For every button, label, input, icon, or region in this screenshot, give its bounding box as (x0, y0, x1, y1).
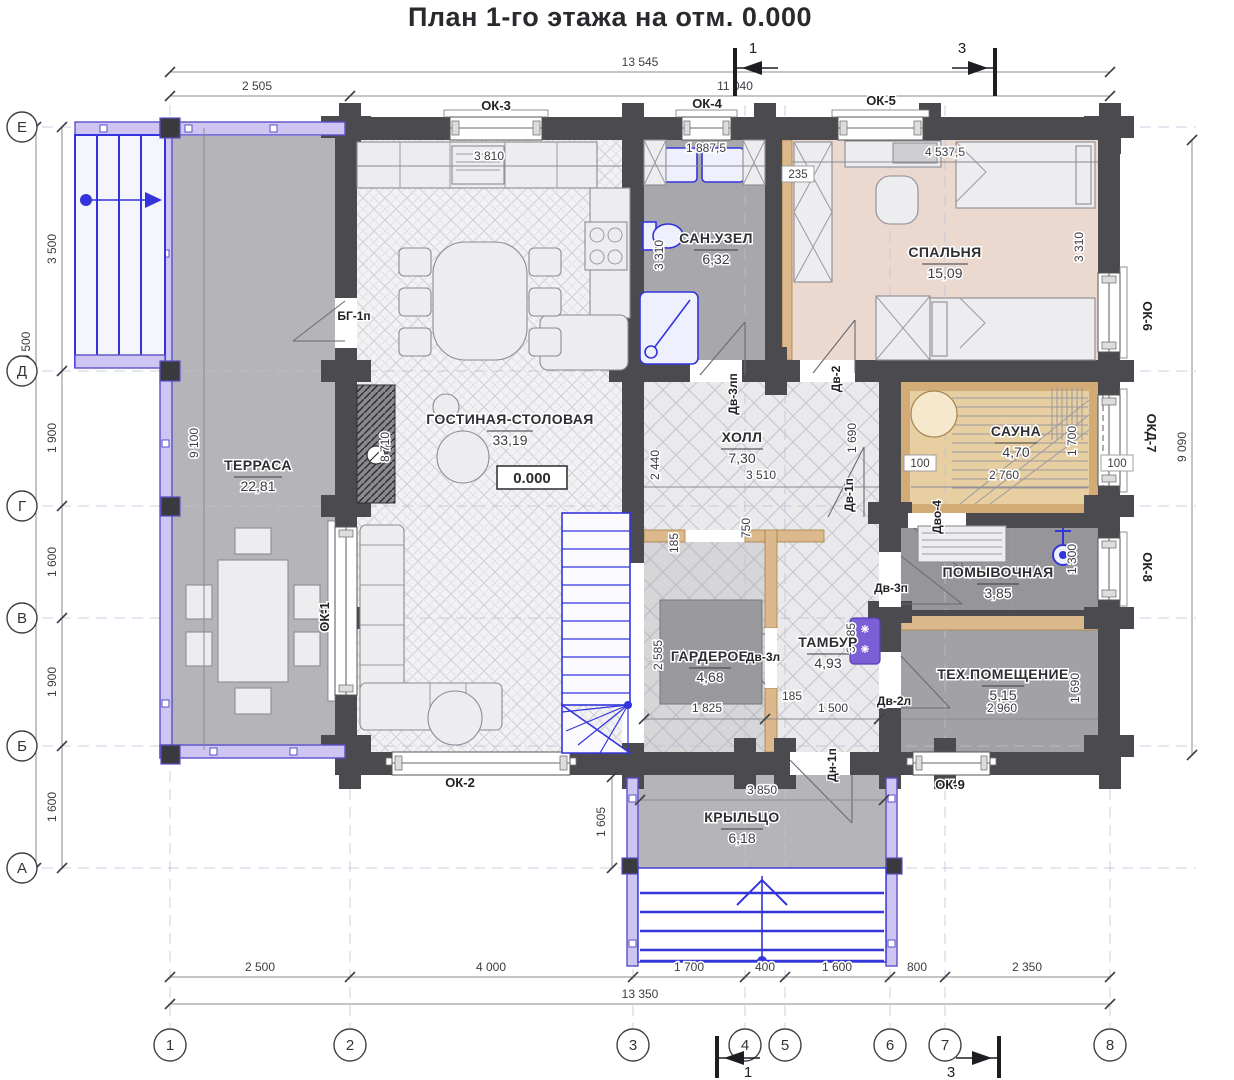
svg-text:2: 2 (346, 1037, 354, 1054)
bed (956, 142, 1095, 208)
svg-text:4: 4 (741, 1037, 749, 1054)
svg-text:1 825: 1 825 (692, 701, 722, 715)
svg-text:1 500: 1 500 (818, 701, 848, 715)
room-label-tehpom: ТЕХ.ПОМЕЩЕНИЕ (937, 666, 1068, 682)
door-label-dv3l: Дв-3л (746, 650, 780, 664)
svg-text:5: 5 (781, 1037, 789, 1054)
svg-text:1 600: 1 600 (822, 960, 852, 974)
svg-text:2 585: 2 585 (651, 640, 665, 670)
floor-plan-page: 13 545 11 040 2 505 2 500 4 000 1 700 40… (0, 0, 1234, 1080)
window-label-ok5: ОК-5 (866, 93, 896, 108)
stove (585, 222, 627, 270)
room-label-garderob: ГАРДЕРОБ (671, 648, 749, 664)
svg-text:3 850: 3 850 (747, 783, 777, 797)
window-label-ok4: ОК-4 (692, 96, 722, 111)
svg-text:3: 3 (629, 1037, 637, 1054)
svg-text:1: 1 (749, 40, 757, 57)
office-chair (876, 176, 918, 224)
svg-text:6,32: 6,32 (702, 251, 729, 267)
svg-text:7,30: 7,30 (728, 450, 755, 466)
svg-text:2 440: 2 440 (648, 450, 662, 480)
svg-text:Б: Б (17, 738, 27, 755)
window-ok4 (676, 110, 737, 140)
floor-plan-drawing: 13 545 11 040 2 505 2 500 4 000 1 700 40… (0, 0, 1234, 1080)
svg-text:750: 750 (739, 518, 753, 538)
svg-text:800: 800 (907, 960, 927, 974)
svg-text:1 600: 1 600 (45, 792, 59, 822)
svg-text:1 900: 1 900 (45, 667, 59, 697)
door-label-bg1p: БГ-1п (337, 309, 370, 323)
svg-text:100: 100 (1107, 458, 1126, 470)
window-label-ok9: ОК-9 (935, 777, 965, 792)
window-label-ok2: ОК-2 (445, 775, 475, 790)
coffee-table (437, 431, 489, 483)
door-label-dv2l: Дв-2л (877, 694, 911, 708)
room-label-sauna: САУНА (991, 423, 1041, 439)
wardrobe (794, 142, 832, 282)
svg-text:400: 400 (755, 960, 775, 974)
svg-text:185: 185 (782, 689, 802, 703)
room-label-spalnya: СПАЛЬНЯ (908, 244, 981, 260)
svg-text:4 000: 4 000 (476, 960, 506, 974)
svg-text:3,85: 3,85 (984, 585, 1011, 601)
svg-text:2 350: 2 350 (1012, 960, 1042, 974)
svg-text:1: 1 (166, 1037, 174, 1054)
window-ok3 (444, 110, 548, 140)
svg-text:2 760: 2 760 (989, 468, 1019, 482)
svg-text:3 310: 3 310 (1072, 232, 1086, 262)
room-label-holl: ХОЛЛ (722, 429, 763, 445)
window-ok8 (1098, 532, 1127, 606)
dim-right-total: 9 090 (1175, 432, 1189, 462)
svg-text:6,18: 6,18 (728, 830, 755, 846)
elevation-mark: 0.000 (497, 466, 567, 489)
terrace-table (218, 560, 288, 682)
svg-text:2 500: 2 500 (245, 960, 275, 974)
door-label-dv1l: Дв-1п (842, 478, 856, 512)
svg-text:15,09: 15,09 (927, 265, 962, 281)
svg-text:1 300: 1 300 (1065, 544, 1079, 574)
section-mark-3-top: 3 (952, 40, 995, 96)
door-label-dv3p: Дв-3п (874, 581, 908, 595)
door-label-dvo4: Дво-4 (930, 500, 944, 534)
door-label-dv2: Дв-2 (829, 365, 843, 392)
svg-text:8: 8 (1106, 1037, 1114, 1054)
svg-text:3: 3 (958, 40, 966, 57)
svg-text:Г: Г (18, 498, 26, 515)
dim-top-total: 13 545 (622, 55, 659, 69)
svg-text:1 887,5: 1 887,5 (686, 141, 726, 155)
svg-text:Е: Е (17, 119, 27, 136)
window-label-okd7: ОКД-7 (1144, 414, 1159, 453)
svg-text:2 960: 2 960 (987, 701, 1017, 715)
svg-text:9 100: 9 100 (187, 428, 201, 458)
page-title: План 1-го этажа на отм. 0.000 (408, 2, 812, 32)
room-label-pomyvochnaya: ПОМЫВОЧНАЯ (942, 564, 1053, 580)
svg-text:3: 3 (947, 1064, 955, 1080)
svg-text:4,93: 4,93 (814, 655, 841, 671)
svg-text:В: В (17, 610, 27, 627)
svg-text:5,15: 5,15 (989, 687, 1016, 703)
window-label-ok3: ОК-3 (481, 98, 511, 113)
svg-text:1 600: 1 600 (45, 547, 59, 577)
svg-text:3 310: 3 310 (652, 240, 666, 270)
svg-text:Д: Д (17, 363, 27, 380)
svg-text:4,70: 4,70 (1002, 444, 1029, 460)
svg-text:1 605: 1 605 (594, 807, 608, 837)
door-label-dn1p: Дн-1п (825, 748, 839, 782)
room-label-terrasa: ТЕРРАСА (224, 457, 292, 473)
svg-text:3 510: 3 510 (746, 468, 776, 482)
svg-text:6: 6 (886, 1037, 894, 1054)
pouf (428, 691, 482, 745)
dim-top-terrace: 2 505 (242, 79, 272, 93)
svg-text:3 810: 3 810 (474, 149, 504, 163)
svg-text:185: 185 (667, 533, 681, 553)
svg-text:33,19: 33,19 (492, 432, 527, 448)
svg-text:1 690: 1 690 (845, 423, 859, 453)
window-ok6 (1098, 267, 1127, 358)
svg-text:А: А (17, 860, 27, 877)
svg-text:1: 1 (744, 1064, 752, 1080)
window-label-ok1: ОК-1 (317, 602, 332, 632)
window-okd7 (1098, 389, 1127, 492)
svg-text:1 900: 1 900 (45, 423, 59, 453)
bed (930, 298, 1095, 360)
svg-text:4 537,5: 4 537,5 (925, 145, 965, 159)
svg-text:1 700: 1 700 (674, 960, 704, 974)
dim-bottom-total: 13 350 (622, 987, 659, 1001)
svg-text:0.000: 0.000 (513, 470, 551, 487)
window-label-ok6: ОК-6 (1140, 301, 1155, 331)
window-ok1 (328, 521, 357, 701)
dining-table (433, 242, 527, 360)
window-ok2 (386, 752, 576, 775)
room-label-tambur: ТАМБУР (798, 634, 858, 650)
room-label-sanuzel: САН.УЗЕЛ (679, 230, 753, 246)
svg-text:7: 7 (941, 1037, 949, 1054)
svg-text:100: 100 (910, 458, 929, 470)
svg-text:1 690: 1 690 (1068, 673, 1082, 703)
window-ok5 (832, 110, 929, 140)
svg-text:4,68: 4,68 (696, 669, 723, 685)
room-label-krylco: КРЫЛЬЦО (704, 809, 779, 825)
svg-text:3 500: 3 500 (45, 234, 59, 264)
window-ok9 (907, 752, 996, 775)
svg-text:22,81: 22,81 (240, 478, 275, 494)
door-label-dv3lp: Дв-3лп (726, 373, 740, 414)
svg-text:235: 235 (788, 169, 807, 181)
svg-text:8 710: 8 710 (378, 432, 392, 462)
sauna-heater (911, 391, 957, 437)
window-label-ok8: ОК-8 (1140, 552, 1155, 582)
room-label-gostinaya: ГОСТИНАЯ-СТОЛОВАЯ (426, 411, 594, 427)
svg-text:1 700: 1 700 (1065, 426, 1079, 456)
